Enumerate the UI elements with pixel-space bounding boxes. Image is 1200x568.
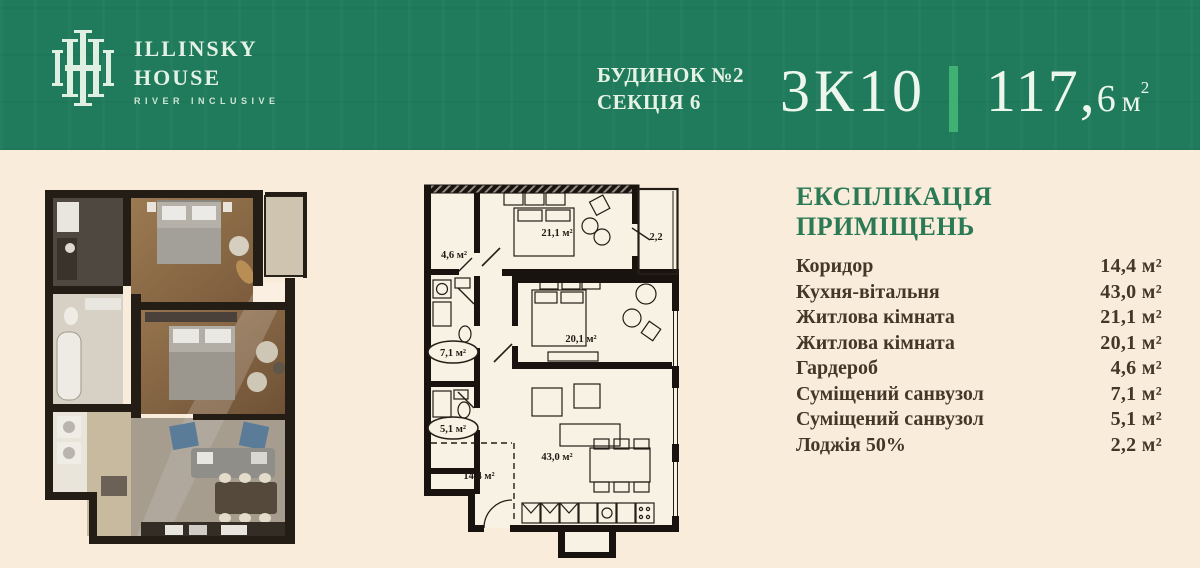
render-blue-chair: [169, 422, 199, 450]
render-dining-table: [215, 482, 277, 514]
room-area: 20,1 м²: [1100, 332, 1162, 354]
explication-panel: ЕКСПЛІКАЦІЯ ПРИМІЩЕНЬ Коридор 14,4 м² Ку…: [796, 182, 1162, 456]
plan-label-bathroom2: 5,1 м²: [440, 424, 466, 435]
building-section-block: БУДИНОК №2 СЕКЦІЯ 6: [597, 62, 744, 116]
render-sink: [65, 243, 75, 253]
brand-text: Illinsky House River Inclusive: [134, 31, 280, 106]
floorplan-2d: 4,6 м² 21,1 м² 2,2 20,1 м² 7,1 м² 5,1 м²…: [424, 176, 682, 558]
plan-label-loggia: 2,2: [649, 232, 662, 243]
render-kitchen-counter: [141, 522, 285, 538]
total-area-whole: 117,: [986, 58, 1097, 124]
render-armchair: [247, 372, 267, 392]
render-appliance: [165, 525, 183, 535]
render-console: [101, 476, 127, 496]
brand-name: Illinsky House: [134, 31, 280, 89]
render-dining-chair: [239, 513, 251, 523]
brand-name-line1: Illinsky: [134, 31, 280, 60]
total-area: 117,6м2: [986, 57, 1149, 126]
room-area: 2,2 м²: [1111, 434, 1162, 456]
render-shower: [57, 202, 79, 232]
room-area: 5,1 м²: [1111, 408, 1162, 430]
section-label: СЕКЦІЯ 6: [597, 89, 744, 116]
brand-name-line2: House: [134, 60, 280, 89]
building-label: БУДИНОК №2: [597, 62, 744, 89]
plan-label-wardrobe: 4,6 м²: [441, 250, 467, 261]
render-armchair: [256, 341, 278, 363]
explication-row: Суміщений санвузол 7,1 м²: [796, 383, 1162, 405]
explication-rows: Коридор 14,4 м² Кухня-вітальня 43,0 м² Ж…: [796, 255, 1162, 456]
explication-row: Суміщений санвузол 5,1 м²: [796, 408, 1162, 430]
brand-tagline: River Inclusive: [134, 96, 280, 106]
explication-row: Гардероб 4,6 м²: [796, 357, 1162, 379]
render-appliance: [221, 525, 247, 535]
plan-label-bedroom1: 21,1 м²: [541, 228, 572, 239]
room-label: Суміщений санвузол: [796, 383, 984, 405]
room-label: Коридор: [796, 255, 873, 277]
total-area-fraction: 6: [1097, 78, 1116, 120]
render-pillow: [205, 329, 231, 343]
render-blanket: [169, 352, 235, 400]
unit-code: 3К10: [780, 57, 926, 126]
room-area: 43,0 м²: [1100, 281, 1162, 303]
floorplan-3d-render: [45, 186, 318, 556]
room-area: 21,1 м²: [1100, 306, 1162, 328]
explication-row: Житлова кімната 20,1 м²: [796, 332, 1162, 354]
explication-row: Житлова кімната 21,1 м²: [796, 306, 1162, 328]
render-wardrobe: [145, 312, 237, 322]
render-appliance: [189, 525, 207, 535]
illinsky-monogram-icon: [52, 26, 114, 110]
render-nightstand: [147, 202, 156, 212]
render-pillow: [192, 206, 216, 220]
header-band: Illinsky House River Inclusive БУДИНОК №…: [0, 0, 1200, 150]
plan-label-kitchen: 43,0 м²: [541, 452, 572, 463]
explication-title: ЕКСПЛІКАЦІЯ ПРИМІЩЕНЬ: [796, 182, 1162, 242]
room-label: Лоджія 50%: [796, 434, 906, 456]
room-area: 4,6 м²: [1111, 357, 1162, 379]
render-dining-chair: [239, 473, 251, 483]
render-blanket: [157, 228, 221, 264]
render-bathtub: [57, 332, 81, 400]
room-label: Гардероб: [796, 357, 878, 379]
render-side-table: [273, 362, 285, 374]
explication-row: Лоджія 50% 2,2 м²: [796, 434, 1162, 456]
flyer-page: Illinsky House River Inclusive БУДИНОК №…: [0, 0, 1200, 568]
explication-row: Кухня-вітальня 43,0 м²: [796, 281, 1162, 303]
render-dryer-door: [63, 447, 75, 459]
render-sink-counter: [85, 298, 121, 310]
render-dining-chair: [219, 513, 231, 523]
render-dining-chair: [259, 473, 271, 483]
plan-label-corridor: 14,4 м²: [463, 471, 494, 482]
render-dining-chair: [259, 513, 271, 523]
render-armchair: [229, 236, 249, 256]
total-area-sup: 2: [1141, 78, 1150, 97]
header-divider-bar: [949, 66, 958, 132]
room-label: Суміщений санвузол: [796, 408, 984, 430]
render-dining-chair: [219, 473, 231, 483]
room-area: 7,1 м²: [1111, 383, 1162, 405]
total-area-unit: м: [1122, 85, 1141, 118]
render-pillow: [173, 329, 199, 343]
plan-label-bedroom2: 20,1 м²: [565, 334, 596, 345]
render-toilet: [64, 307, 78, 325]
floorplan-2d-svg: 4,6 м² 21,1 м² 2,2 20,1 м² 7,1 м² 5,1 м²…: [424, 176, 682, 558]
render-sofa-pillow: [251, 452, 267, 464]
explication-row: Коридор 14,4 м²: [796, 255, 1162, 277]
plan-windows: [672, 311, 679, 516]
render-nightstand: [223, 202, 232, 212]
room-label: Житлова кімната: [796, 332, 955, 354]
room-label: Кухня-вітальня: [796, 281, 940, 303]
render-sofa-pillow: [197, 452, 213, 464]
floorplan-3d-svg: [45, 186, 318, 556]
render-pillow: [162, 206, 186, 220]
render-washer-door: [63, 421, 75, 433]
brand-block: Illinsky House River Inclusive: [52, 26, 280, 110]
room-area: 14,4 м²: [1100, 255, 1162, 277]
plan-label-bathroom1: 7,1 м²: [440, 348, 466, 359]
render-loggia-floor: [265, 196, 305, 276]
room-label: Житлова кімната: [796, 306, 955, 328]
